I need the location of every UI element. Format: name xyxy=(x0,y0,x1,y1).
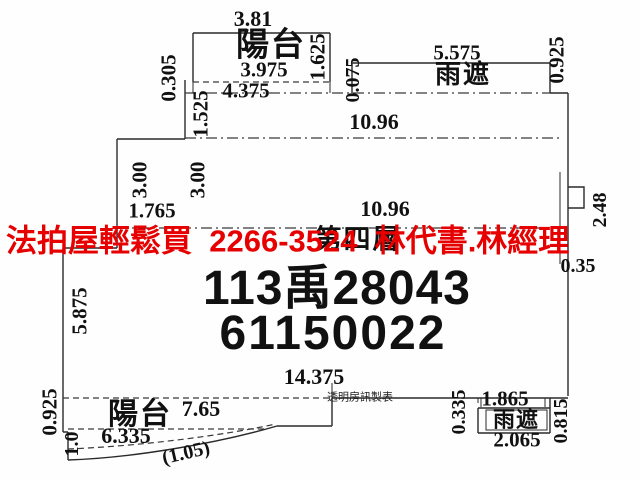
dim-height-1525: 1.525 xyxy=(191,90,212,137)
floorplan-canvas: 陽台 雨遮 陽台 雨遮 第四層 透明房訊製表 113禹28043 6115002… xyxy=(0,0,640,480)
dim-bottom-offset-0335: 0.335 xyxy=(449,390,469,435)
dim-top-balcony-width-outer: 3.81 xyxy=(234,8,273,30)
dim-bottom-width-14375: 14.375 xyxy=(284,366,345,388)
dim-bottom-balcony-width-765: 7.65 xyxy=(182,398,221,420)
right-protrusion xyxy=(568,187,584,208)
producer-label: 透明房訊製表 xyxy=(327,393,393,404)
bottom-balcony-right-edge xyxy=(277,398,332,426)
dim-bottom-awning-height-0815: 0.815 xyxy=(551,399,571,444)
dim-top-balcony-height: 1.625 xyxy=(308,33,329,80)
dim-top-awning-width: 5.575 xyxy=(433,43,480,64)
dim-bottom-balcony-height-10: 1.0 xyxy=(62,432,82,457)
dim-main-width-lower: 10.96 xyxy=(360,198,410,220)
left-wall-lower xyxy=(63,248,68,460)
dim-offset-0075: 0.075 xyxy=(343,58,363,103)
dim-width-1765: 1.765 xyxy=(128,201,175,222)
dim-bottom-awning-width-1865: 1.865 xyxy=(481,389,528,410)
dim-main-width-upper: 10.96 xyxy=(349,111,399,133)
dim-left-height-5875: 5.875 xyxy=(70,287,91,334)
case-number-line1: 113禹28043 xyxy=(203,265,471,313)
watermark-text: 法拍屋輕鬆買 2266-3524 林代書.林經理 xyxy=(6,226,569,257)
dim-right-height-248: 2.48 xyxy=(590,193,610,228)
dim-left-height-3a: 3.00 xyxy=(130,162,151,199)
top-awning-label: 雨遮 xyxy=(435,62,491,88)
dim-right-offset-035: 0.35 xyxy=(561,256,596,276)
dim-bottom-awning-width-2065: 2.065 xyxy=(493,430,540,451)
dim-width-4375: 4.375 xyxy=(222,81,269,102)
dim-top-balcony-width-inner: 3.975 xyxy=(240,60,287,81)
dim-top-awning-height: 0.925 xyxy=(547,36,568,83)
dim-offset-0305: 0.305 xyxy=(159,54,180,101)
case-number-line2: 61150022 xyxy=(220,310,447,358)
dim-left-height-3b: 3.00 xyxy=(188,162,209,199)
dim-bottom-balcony-width-6335: 6.335 xyxy=(101,425,151,447)
dim-bottom-balcony-height-0925: 0.925 xyxy=(40,388,61,435)
